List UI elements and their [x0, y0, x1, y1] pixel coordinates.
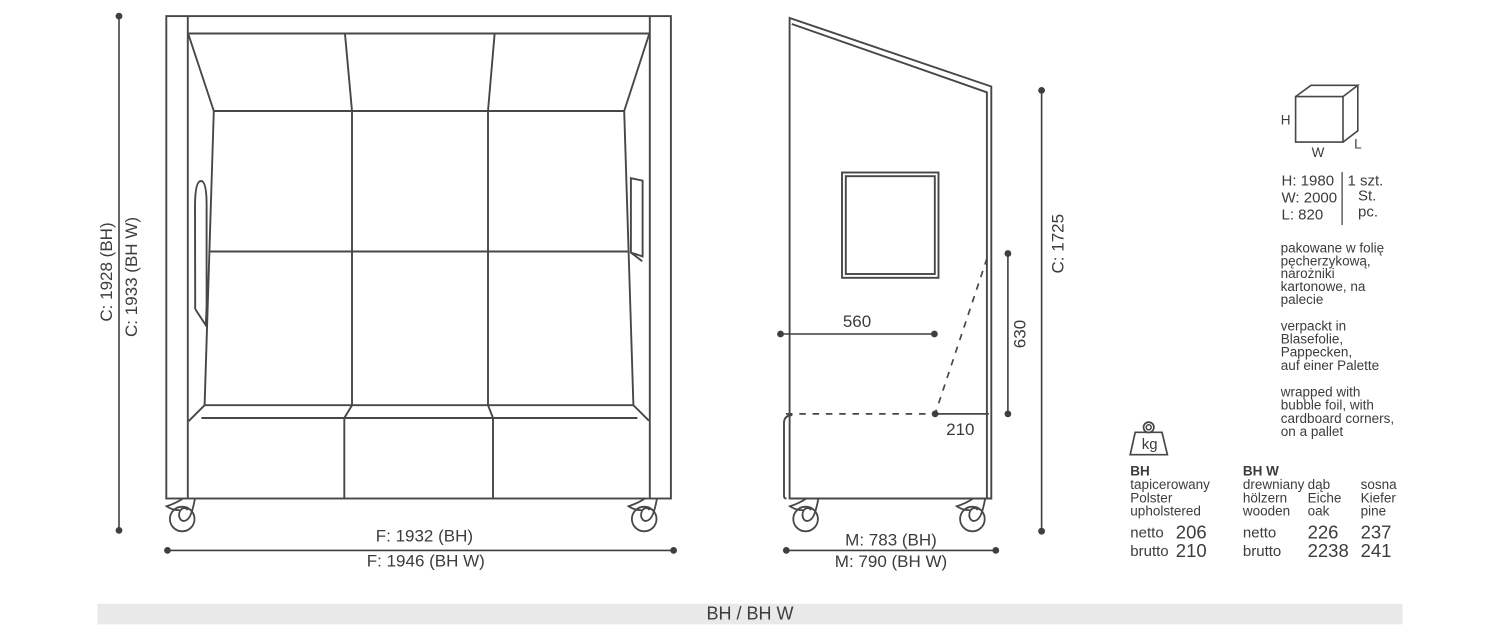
- svg-text:M: 790 (BH W): M: 790 (BH W): [835, 552, 947, 571]
- svg-text:W: 2000: W: 2000: [1282, 190, 1338, 207]
- svg-text:M: 783 (BH): M: 783 (BH): [845, 531, 937, 550]
- svg-text:netto: netto: [1130, 525, 1163, 542]
- svg-text:pc.: pc.: [1358, 204, 1378, 221]
- svg-text:palecie: palecie: [1281, 292, 1324, 307]
- svg-text:on a pallet: on a pallet: [1281, 424, 1344, 439]
- svg-text:wooden: wooden: [1242, 504, 1290, 519]
- svg-text:2238: 2238: [1308, 540, 1349, 561]
- svg-text:210: 210: [946, 420, 974, 439]
- svg-text:C: 1725: C: 1725: [1049, 214, 1068, 274]
- svg-text:F: 1932 (BH): F: 1932 (BH): [376, 527, 473, 546]
- svg-text:H: 1980: H: 1980: [1282, 172, 1335, 189]
- svg-text:pine: pine: [1361, 504, 1387, 519]
- svg-text:netto: netto: [1243, 525, 1276, 542]
- svg-text:C: 1933 (BH W): C: 1933 (BH W): [122, 217, 141, 337]
- svg-text:L: 820: L: 820: [1282, 207, 1324, 224]
- svg-text:St.: St.: [1358, 188, 1376, 205]
- svg-text:L: L: [1354, 137, 1362, 152]
- svg-text:kg: kg: [1142, 436, 1158, 453]
- svg-text:C: 1928 (BH): C: 1928 (BH): [97, 222, 116, 321]
- svg-text:auf einer Palette: auf einer Palette: [1281, 358, 1379, 373]
- svg-text:630: 630: [1011, 320, 1030, 348]
- svg-text:210: 210: [1176, 540, 1207, 561]
- svg-text:241: 241: [1361, 540, 1392, 561]
- svg-text:560: 560: [843, 312, 871, 331]
- svg-text:oak: oak: [1308, 504, 1330, 519]
- svg-text:F: 1946 (BH W): F: 1946 (BH W): [367, 551, 485, 570]
- svg-text:brutto: brutto: [1130, 543, 1168, 560]
- svg-text:W: W: [1312, 145, 1325, 160]
- svg-text:brutto: brutto: [1243, 543, 1281, 560]
- svg-text:H: H: [1281, 112, 1291, 127]
- svg-text:upholstered: upholstered: [1130, 504, 1201, 519]
- svg-text:BH / BH W: BH / BH W: [706, 604, 793, 624]
